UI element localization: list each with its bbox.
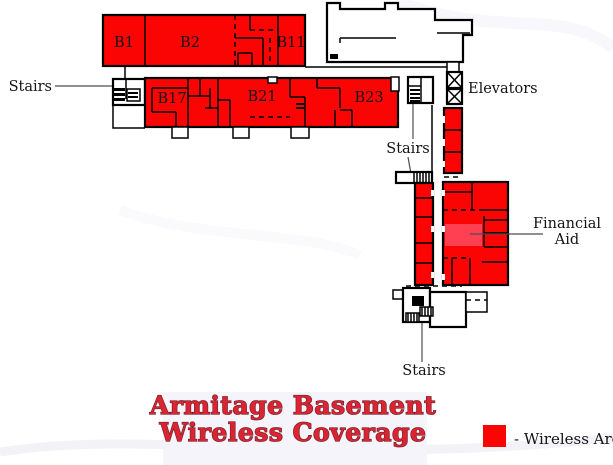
- financial-aid-label-line1: Financial: [533, 216, 601, 232]
- legend-label: - Wireless Area: [514, 430, 613, 448]
- room-label-b11: B11: [276, 35, 305, 51]
- room-label-b2: B2: [180, 35, 200, 51]
- mid-corridor-wing: [442, 108, 462, 173]
- coverage-area-mid-strip: [444, 108, 462, 173]
- stair-treads-icon: [410, 89, 420, 91]
- elevators-label: Elevators: [468, 81, 538, 97]
- stair-treads-icon: [114, 88, 125, 91]
- room-label-b21: B21: [247, 89, 276, 105]
- financial-aid-room-highlight: [445, 224, 482, 246]
- room-label-b23: B23: [354, 90, 383, 106]
- room-label-b1: B1: [114, 35, 134, 51]
- room-label-b17: B17: [157, 91, 186, 107]
- floor-plan: B1 B2 B11 Stairs Elevators: [0, 0, 613, 465]
- page-title-line2: Wireless Coverage: [159, 418, 427, 447]
- stairs-bottom-label: Stairs: [402, 363, 445, 379]
- stair-landing: [396, 172, 432, 183]
- financial-aid-label-line2: Aid: [554, 232, 579, 248]
- title-block: Armitage Basement Wireless Coverage: [149, 391, 436, 465]
- page-title-line1: Armitage Basement: [149, 391, 436, 420]
- stairs-mid-label: Stairs: [386, 141, 429, 157]
- stairs-top-label: Stairs: [9, 79, 52, 95]
- legend-swatch: [483, 425, 506, 447]
